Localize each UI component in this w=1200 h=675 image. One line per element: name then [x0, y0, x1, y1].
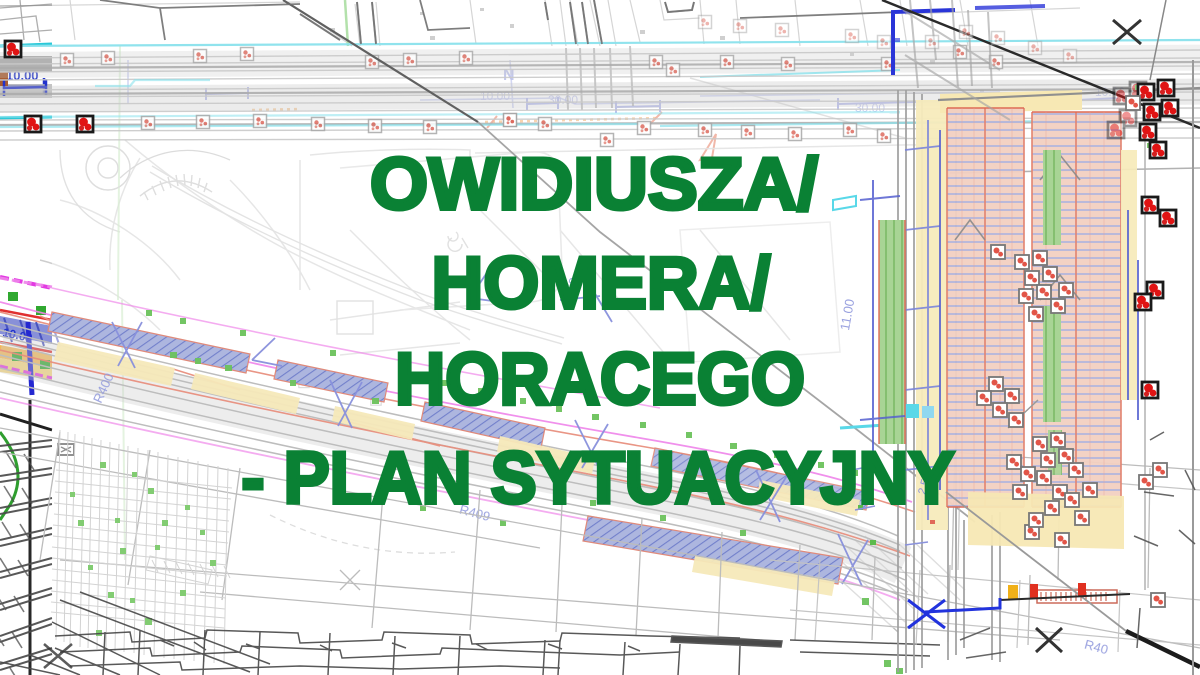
svg-text:HORACEGO: HORACEGO — [395, 337, 805, 420]
svg-text:- PLAN SYTUACYJNY: - PLAN SYTUACYJNY — [242, 436, 955, 519]
svg-text:HOMERA/: HOMERA/ — [432, 241, 771, 324]
svg-text:OWIDIUSZA/: OWIDIUSZA/ — [370, 142, 818, 225]
